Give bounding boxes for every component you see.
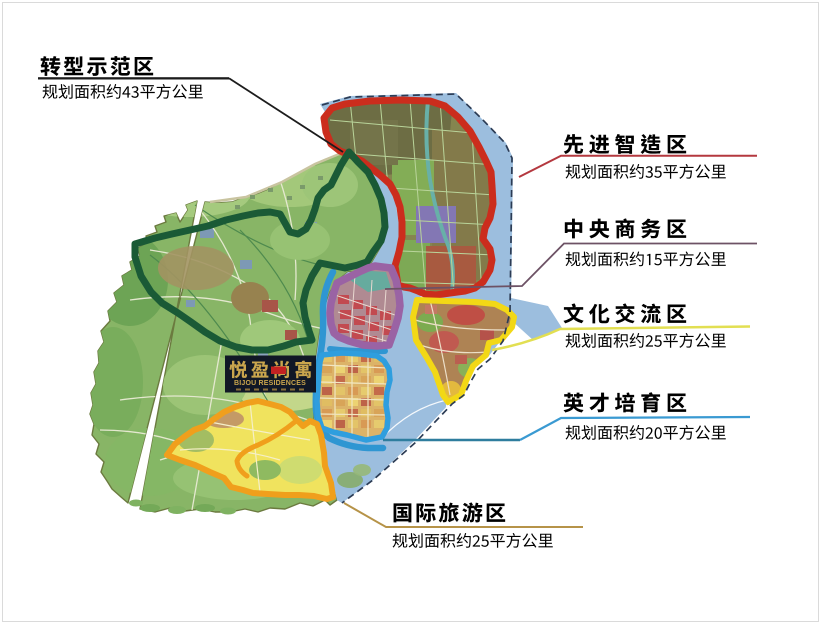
svg-text:BIJOU RESIDENCES: BIJOU RESIDENCES <box>234 380 306 387</box>
